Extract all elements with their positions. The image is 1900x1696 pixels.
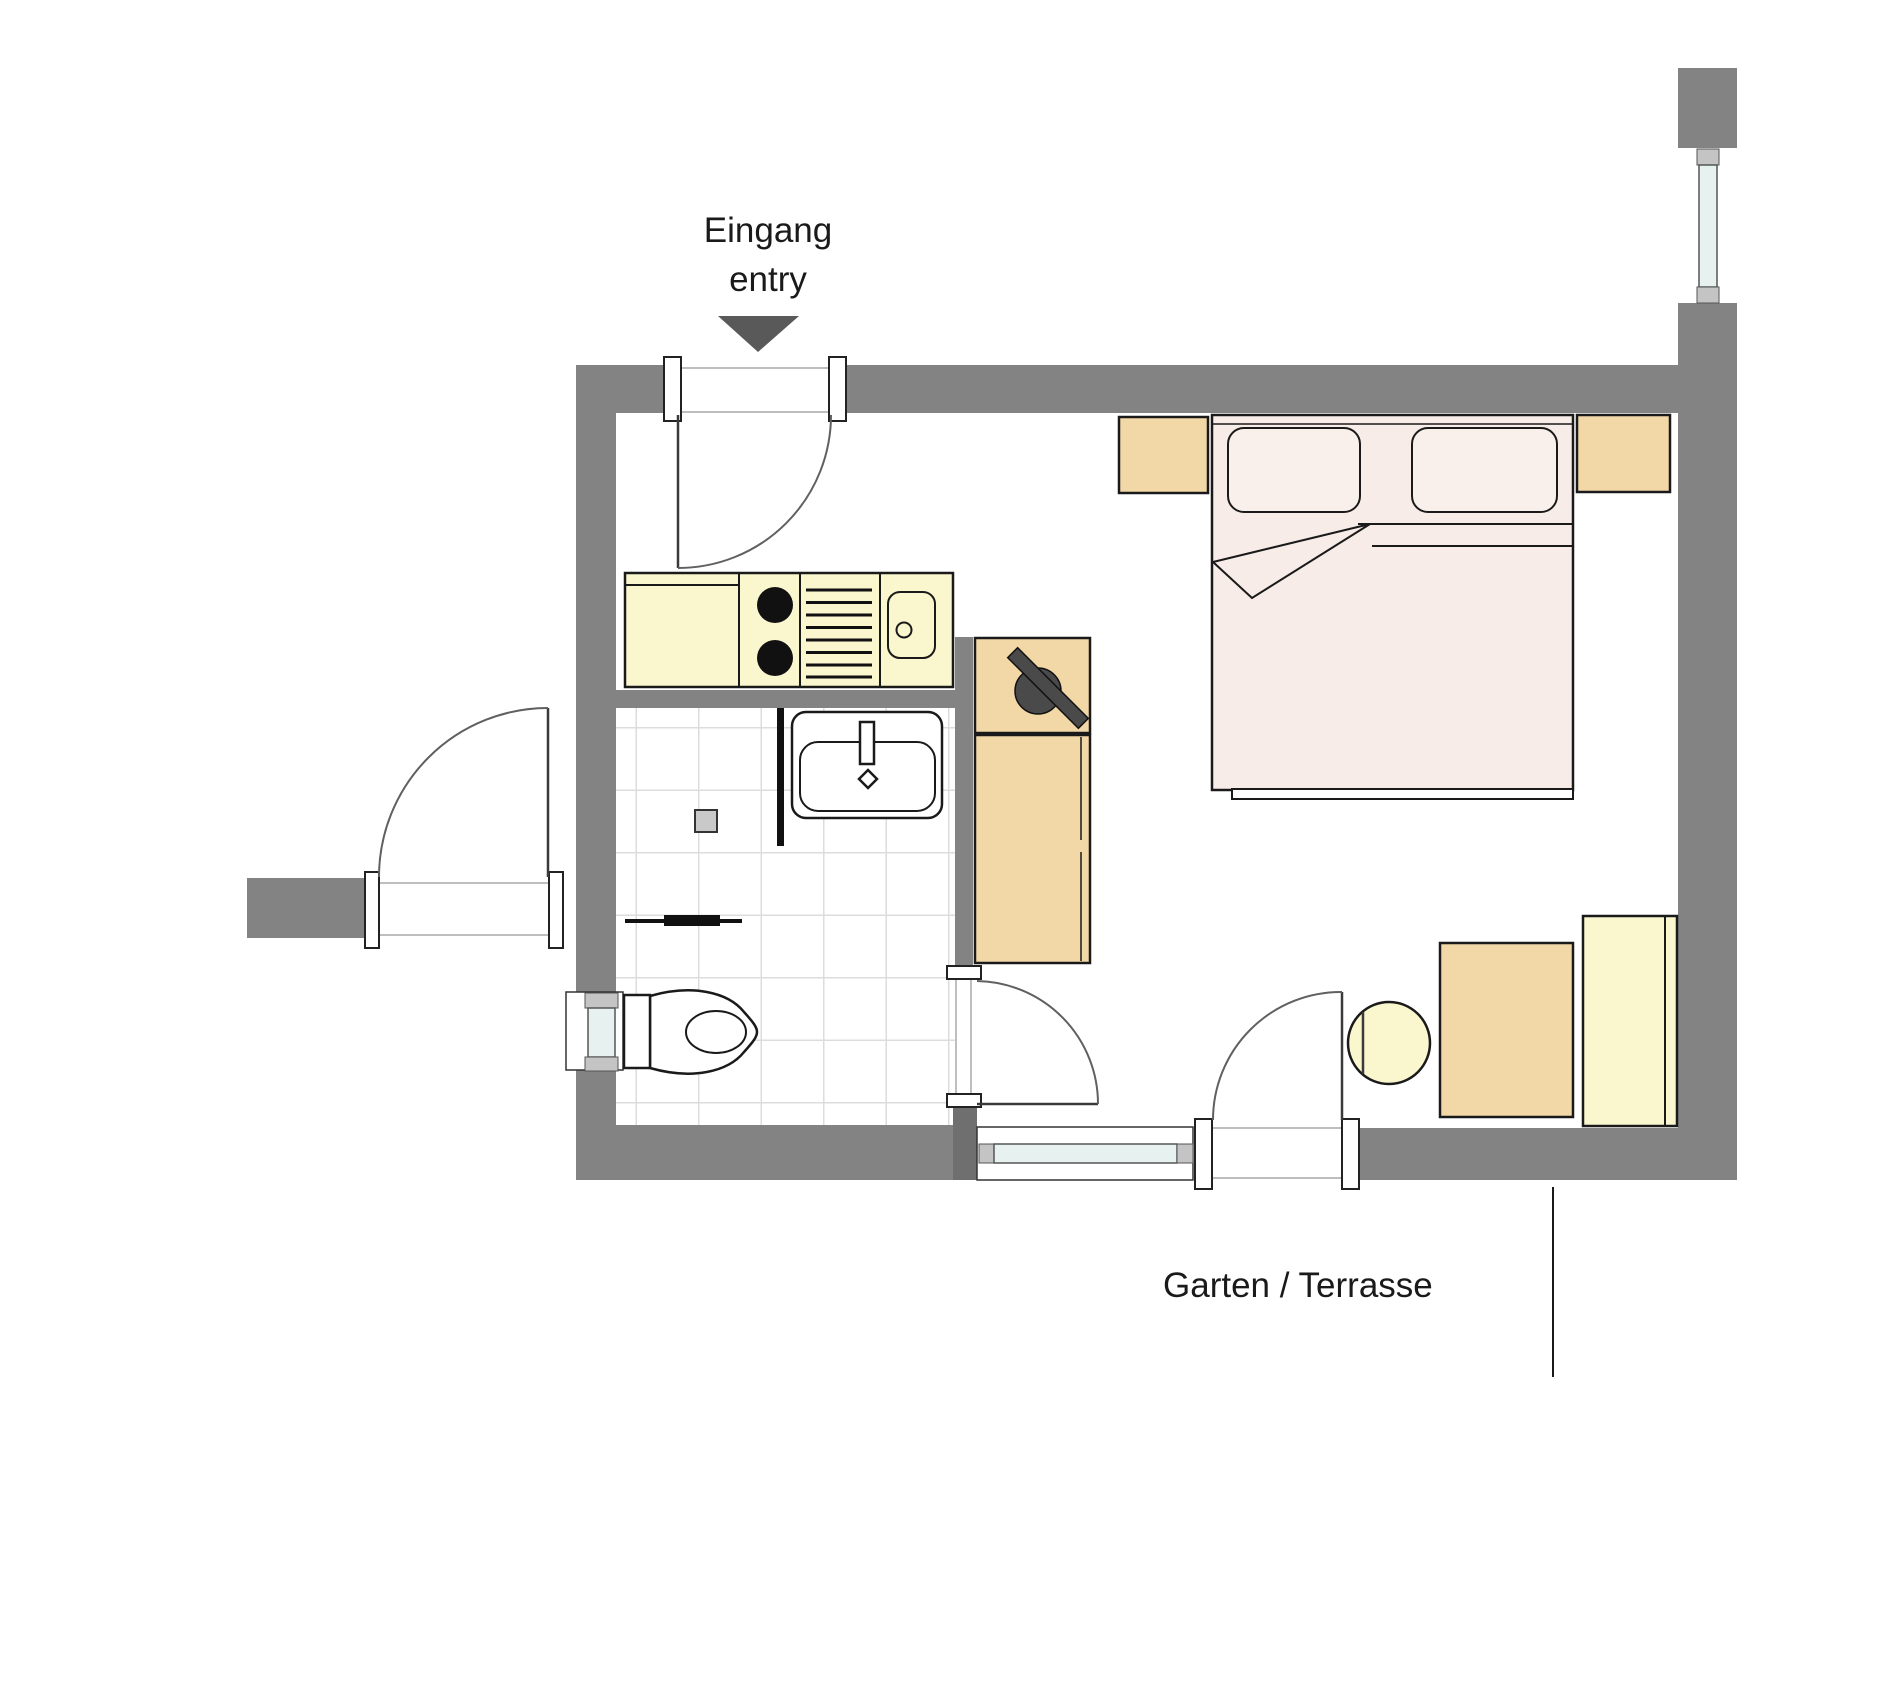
kitchenette [625,573,953,687]
bathroom-sink-faucet [860,722,874,764]
window-bottom-end-left [979,1144,994,1163]
side-door-jamb-left [365,872,379,948]
stove-burner-top [757,587,793,623]
wall-side-entry-stub [247,878,365,938]
dresser [975,735,1090,963]
kitchen-counter [625,573,953,687]
window-right-end-bottom [1697,287,1719,303]
wall-stub-bathroom-door [953,1108,977,1180]
entrance-label-line1: Eingang [618,206,918,255]
terrace-door-jamb-right [1342,1119,1359,1189]
entry-door-jamb-right [829,357,846,421]
entrance-label-line2: entry [618,255,918,304]
terrace-door-jamb-left [1195,1119,1212,1189]
pillow-left [1228,428,1360,512]
entrance-label: Eingang entry [618,206,918,304]
side-door-jamb-right [549,872,563,948]
stove-burner-bottom [757,640,793,676]
shower-drain [695,810,717,832]
window-right-wall [1678,148,1737,303]
bathroom-door-jamb-bottom [947,1094,981,1107]
window-left-glazing [588,1008,615,1057]
wall-top-right-segment [829,365,1680,413]
window-bottom-end-right [1177,1144,1193,1163]
round-chair [1348,1002,1430,1084]
tall-cabinet [1583,916,1677,1126]
window-left-wall [566,992,623,1071]
window-right-end-top [1697,149,1719,165]
floor-plan: Eingang entry Garten / Terrasse [0,0,1900,1696]
desk [1440,943,1573,1117]
window-bottom-wall [977,1127,1193,1180]
wall-bottom-left-segment [576,1125,953,1180]
window-right-glazing [1699,165,1717,287]
window-bottom-glazing [994,1144,1177,1163]
window-left-end-bottom [585,1057,618,1071]
bathroom-door-jamb-top [947,966,981,979]
wall-under-kitchen [616,690,973,708]
nightstand-left [1119,417,1208,493]
wall-bottom-right-segment [1357,1128,1737,1180]
window-left-end-top [585,993,618,1008]
nightstand-right [1577,415,1670,492]
pillow-right [1412,428,1557,512]
garden-terrace-label: Garten / Terrasse [1163,1266,1433,1306]
entry-door-jamb-left [664,357,681,421]
wall-bathroom-right [955,637,973,978]
toilet-tank [624,995,650,1068]
floor-plan-drawing [0,0,1900,1696]
bed-footboard [1232,789,1573,799]
shower-screen-handle [664,915,720,926]
shower-screen-vertical [777,708,784,846]
